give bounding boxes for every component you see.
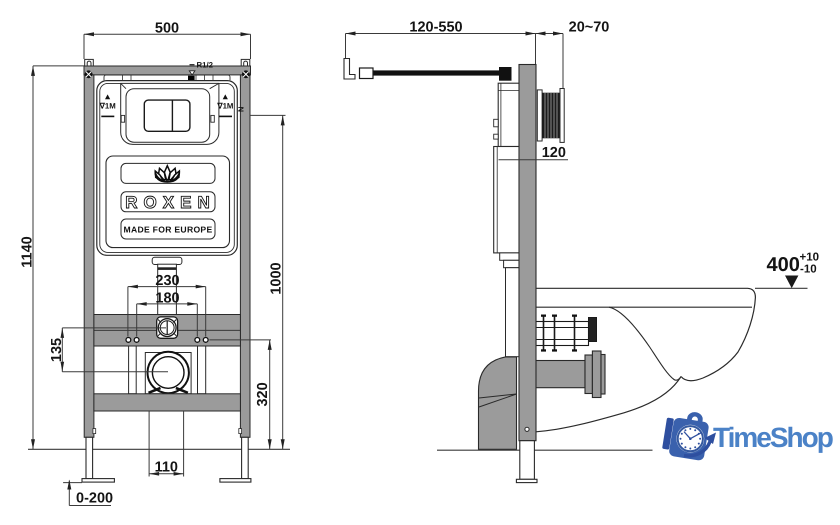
svg-text:∇1M: ∇1M (99, 102, 116, 111)
svg-text:R1/2: R1/2 (197, 61, 214, 70)
svg-text:ROXEN: ROXEN (125, 193, 215, 212)
svg-text:N: N (237, 107, 246, 112)
svg-text:TimeShop: TimeShop (713, 422, 833, 453)
svg-text:320: 320 (255, 382, 271, 406)
svg-text:0-200: 0-200 (76, 491, 113, 507)
svg-text:+10: +10 (800, 252, 820, 264)
svg-text:135: 135 (49, 338, 65, 362)
svg-text:1000: 1000 (269, 262, 285, 294)
svg-text:MADE FOR EUROPE: MADE FOR EUROPE (123, 225, 212, 235)
svg-text:400: 400 (767, 254, 800, 276)
svg-text:∇1M: ∇1M (216, 102, 233, 111)
svg-text:120: 120 (542, 145, 566, 161)
svg-text:-10: -10 (800, 264, 817, 276)
svg-text:20~70: 20~70 (569, 20, 610, 36)
